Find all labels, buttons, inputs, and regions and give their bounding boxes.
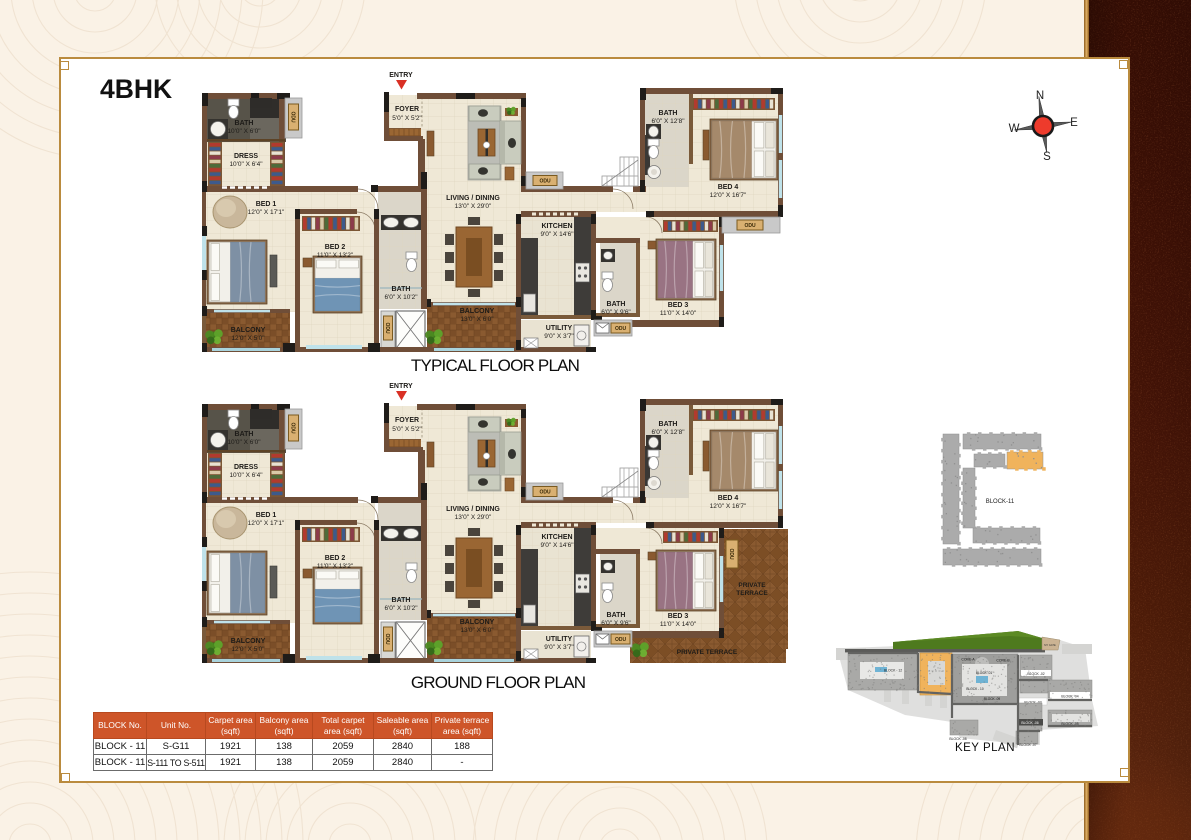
svg-text:CORE-B: CORE-B: [996, 659, 1010, 663]
svg-text:ODU: ODU: [290, 422, 296, 434]
svg-text:UTILITY: UTILITY: [546, 325, 573, 332]
svg-text:12'0" X 5'0": 12'0" X 5'0": [231, 335, 265, 342]
svg-text:5'0" X 5'2": 5'0" X 5'2": [392, 426, 422, 433]
svg-text:ODU: ODU: [539, 490, 551, 496]
svg-text:BED 2: BED 2: [325, 244, 346, 251]
svg-text:ODU: ODU: [615, 326, 627, 332]
svg-text:BALCONY: BALCONY: [231, 327, 266, 334]
svg-text:W: W: [1009, 123, 1020, 135]
svg-text:ODU: ODU: [539, 179, 551, 185]
svg-text:BALCONY: BALCONY: [460, 619, 495, 626]
svg-text:BED 4: BED 4: [718, 184, 739, 191]
svg-text:11'0" X 13'2": 11'0" X 13'2": [317, 252, 354, 259]
svg-text:ENTRY: ENTRY: [389, 72, 413, 79]
svg-text:E: E: [1070, 117, 1078, 129]
svg-text:10'0" X 6'0": 10'0" X 6'0": [227, 128, 261, 135]
svg-text:MY GATE: MY GATE: [1044, 643, 1056, 647]
svg-text:10'0" X 6'4": 10'0" X 6'4": [229, 161, 263, 168]
svg-text:N: N: [1036, 90, 1044, 102]
svg-text:10'0" X 6'0": 10'0" X 6'0": [227, 439, 261, 446]
svg-text:9'0" X 14'6": 9'0" X 14'6": [540, 231, 574, 238]
svg-text:12'0" X 17'1": 12'0" X 17'1": [248, 209, 285, 216]
svg-text:FOYER: FOYER: [395, 417, 419, 424]
svg-text:BATH: BATH: [235, 120, 254, 127]
svg-text:12'0" X 17'1": 12'0" X 17'1": [248, 520, 285, 527]
svg-text:6'0" X 10'2": 6'0" X 10'2": [384, 605, 418, 612]
svg-text:BATH: BATH: [659, 110, 678, 117]
svg-text:13'0" X 29'0": 13'0" X 29'0": [455, 203, 492, 210]
svg-text:ENTRY: ENTRY: [389, 383, 413, 390]
svg-text:BLOCK -08: BLOCK -08: [949, 737, 966, 741]
svg-text:BED 4: BED 4: [718, 495, 739, 502]
svg-text:13'0" X 29'0": 13'0" X 29'0": [455, 514, 492, 521]
svg-text:BATH: BATH: [392, 597, 411, 604]
svg-text:5'0" X 5'2": 5'0" X 5'2": [392, 115, 422, 122]
svg-text:BED 1: BED 1: [256, 512, 277, 519]
svg-text:KITCHEN: KITCHEN: [541, 223, 572, 230]
svg-text:UTILITY: UTILITY: [546, 636, 573, 643]
svg-text:12'0" X 16'7": 12'0" X 16'7": [710, 192, 747, 199]
svg-text:S: S: [1043, 151, 1051, 163]
svg-text:6'0" X 12'8": 6'0" X 12'8": [651, 118, 685, 125]
svg-text:FOYER: FOYER: [395, 106, 419, 113]
svg-text:11'0" X 14'0": 11'0" X 14'0": [660, 310, 697, 317]
svg-text:DRESS: DRESS: [234, 464, 258, 471]
svg-text:BLOCK - 10: BLOCK - 10: [966, 687, 983, 691]
svg-text:ODU: ODU: [290, 111, 296, 123]
svg-text:6'0" X 12'8": 6'0" X 12'8": [651, 429, 685, 436]
svg-text:BATH: BATH: [235, 431, 254, 438]
svg-text:BATH: BATH: [392, 286, 411, 293]
svg-text:13'0" X 6'0": 13'0" X 6'0": [460, 627, 494, 634]
svg-text:BED 3: BED 3: [668, 613, 689, 620]
svg-text:BLOCK - 12: BLOCK - 12: [884, 669, 902, 673]
svg-text:ODU: ODU: [744, 223, 756, 229]
svg-text:PRIVATE TERRACE: PRIVATE TERRACE: [677, 649, 738, 656]
svg-text:PRIVATE: PRIVATE: [738, 582, 766, 589]
svg-text:12'0" X 5'0": 12'0" X 5'0": [231, 646, 265, 653]
svg-text:BALCONY: BALCONY: [460, 308, 495, 315]
svg-text:11'0" X 14'0": 11'0" X 14'0": [660, 621, 697, 628]
svg-text:12'0" X 16'7": 12'0" X 16'7": [710, 503, 747, 510]
svg-text:ODU: ODU: [615, 637, 627, 643]
svg-text:BATH: BATH: [659, 421, 678, 428]
svg-text:BALCONY: BALCONY: [231, 638, 266, 645]
svg-text:BATH: BATH: [607, 301, 626, 308]
svg-text:ODU: ODU: [384, 322, 390, 334]
svg-text:LIVING / DINING: LIVING / DINING: [446, 195, 500, 202]
svg-text:LIVING / DINING: LIVING / DINING: [446, 506, 500, 513]
svg-text:TERRACE: TERRACE: [736, 590, 768, 597]
svg-text:9'0" X 14'6": 9'0" X 14'6": [540, 542, 574, 549]
svg-text:KITCHEN: KITCHEN: [541, 534, 572, 541]
svg-text:9'0" X 3'7": 9'0" X 3'7": [544, 644, 574, 651]
svg-text:6'0" X 9'6": 6'0" X 9'6": [601, 309, 631, 316]
svg-text:BLOCK-11: BLOCK-11: [986, 499, 1015, 505]
svg-text:BED 1: BED 1: [256, 201, 277, 208]
svg-text:DRESS: DRESS: [234, 153, 258, 160]
svg-text:13'0" X 6'0": 13'0" X 6'0": [460, 316, 494, 323]
svg-text:6'0" X 10'2": 6'0" X 10'2": [384, 294, 418, 301]
svg-text:9'0" X 3'7": 9'0" X 3'7": [544, 333, 574, 340]
svg-text:6'0" X 9'6": 6'0" X 9'6": [601, 620, 631, 627]
svg-text:ODU: ODU: [384, 633, 390, 645]
svg-text:BATH: BATH: [607, 612, 626, 619]
svg-text:BED 3: BED 3: [668, 302, 689, 309]
svg-text:ODU: ODU: [728, 548, 734, 560]
svg-text:10'0" X 6'4": 10'0" X 6'4": [229, 472, 263, 479]
svg-text:11'0" X 13'2": 11'0" X 13'2": [317, 563, 354, 570]
svg-text:BED 2: BED 2: [325, 555, 346, 562]
